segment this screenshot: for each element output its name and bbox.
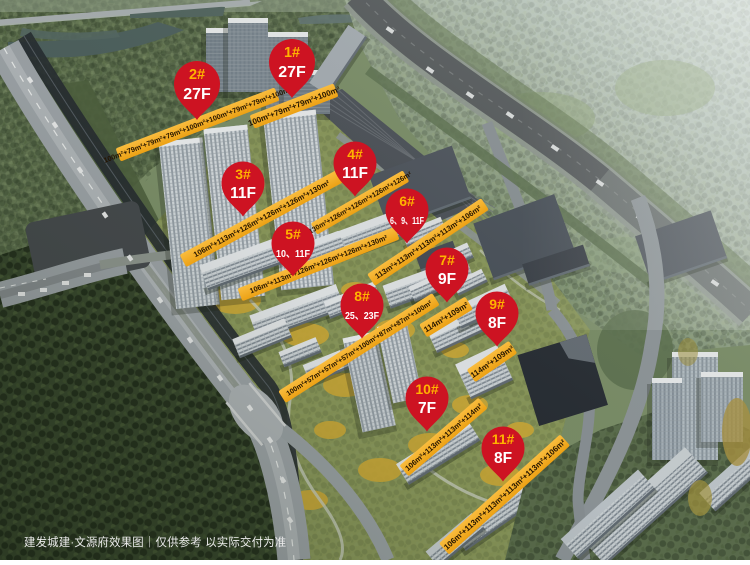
svg-text:5#: 5# bbox=[285, 226, 301, 242]
svg-text:8F: 8F bbox=[488, 315, 506, 332]
svg-text:3#: 3# bbox=[235, 166, 251, 182]
svg-text:10、11F: 10、11F bbox=[276, 249, 310, 260]
svg-text:建发城建·文源府效果图｜仅供参考 以实际交付为准: 建发城建·文源府效果图｜仅供参考 以实际交付为准 bbox=[24, 535, 286, 549]
svg-text:4#: 4# bbox=[347, 146, 363, 162]
svg-text:2#: 2# bbox=[189, 67, 205, 83]
svg-text:1#: 1# bbox=[284, 45, 300, 61]
svg-text:10#: 10# bbox=[415, 381, 439, 397]
svg-text:11F: 11F bbox=[230, 185, 256, 202]
svg-text:9#: 9# bbox=[489, 296, 505, 312]
svg-text:11F: 11F bbox=[342, 165, 368, 182]
svg-text:6#: 6# bbox=[399, 193, 415, 209]
svg-text:7F: 7F bbox=[418, 400, 436, 417]
svg-text:7#: 7# bbox=[439, 252, 455, 268]
svg-text:27F: 27F bbox=[183, 86, 211, 103]
svg-text:6、9、11F: 6、9、11F bbox=[390, 216, 424, 227]
svg-text:27F: 27F bbox=[278, 64, 306, 81]
svg-text:8F: 8F bbox=[494, 450, 512, 467]
svg-text:9F: 9F bbox=[438, 271, 456, 288]
svg-text:8#: 8# bbox=[354, 288, 370, 304]
svg-text:11#: 11# bbox=[492, 431, 515, 447]
svg-text:25、23F: 25、23F bbox=[345, 311, 379, 322]
